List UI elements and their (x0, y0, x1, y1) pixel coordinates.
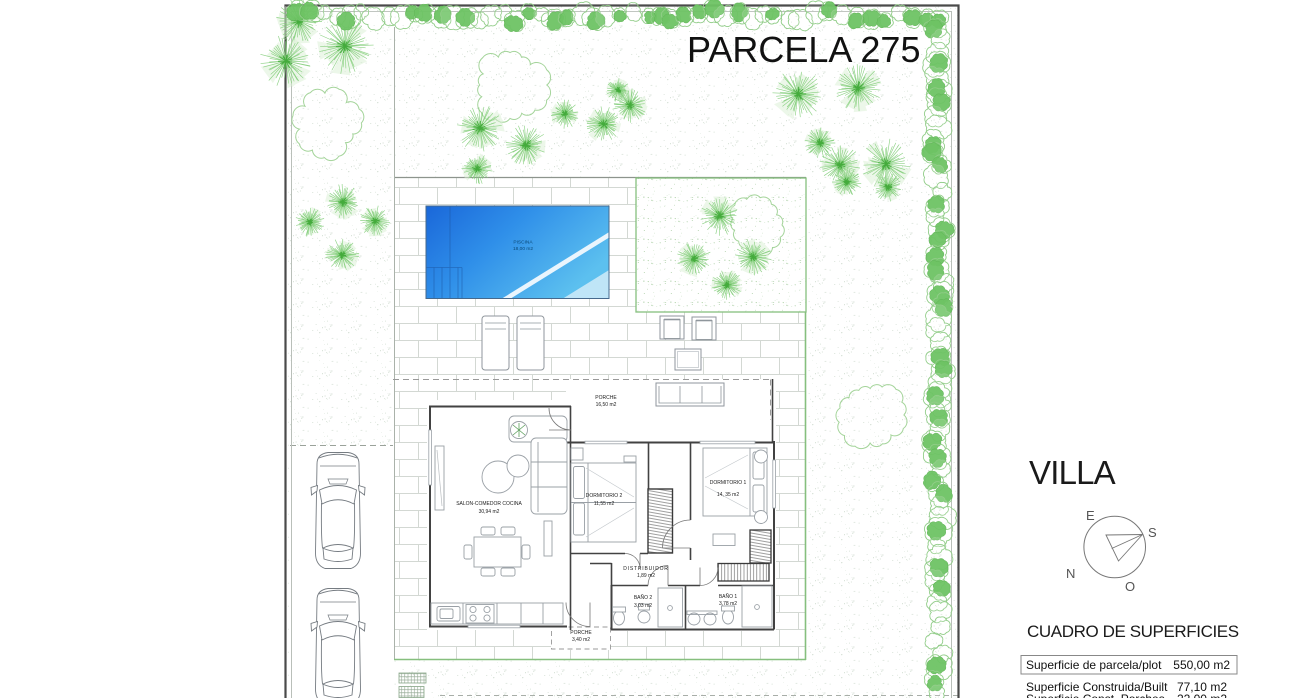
svg-text:SALON-COMEDOR COCINA: SALON-COMEDOR COCINA (456, 501, 522, 507)
svg-text:3,78 m2: 3,78 m2 (719, 601, 737, 607)
svg-text:1,89 m2: 1,89 m2 (637, 573, 655, 579)
svg-text:3,03 m2: 3,03 m2 (634, 603, 652, 609)
svg-text:E: E (1086, 508, 1095, 523)
svg-text:S: S (1148, 525, 1157, 540)
svg-text:PORCHE: PORCHE (595, 395, 617, 401)
svg-text:PARCELA 275: PARCELA 275 (687, 29, 920, 70)
svg-text:14, 35 m2: 14, 35 m2 (717, 492, 739, 498)
svg-text:550,00 m2: 550,00 m2 (1173, 658, 1230, 672)
svg-text:Superficie de parcela/plot: Superficie de parcela/plot (1026, 658, 1162, 672)
svg-text:VILLA: VILLA (1029, 454, 1116, 491)
svg-text:3,40 m2: 3,40 m2 (572, 637, 590, 643)
svg-text:DORMITORIO 2: DORMITORIO 2 (586, 493, 623, 499)
svg-text:22,00 m2: 22,00 m2 (1177, 692, 1227, 698)
svg-text:PORCHE: PORCHE (570, 630, 592, 636)
svg-text:N: N (1066, 566, 1075, 581)
svg-text:DISTRIBUIDOR: DISTRIBUIDOR (623, 566, 668, 572)
svg-text:O: O (1125, 579, 1135, 594)
svg-text:BAÑO 1: BAÑO 1 (719, 593, 738, 600)
svg-text:BAÑO 2: BAÑO 2 (634, 594, 653, 601)
svg-text:CUADRO DE SUPERFICIES: CUADRO DE SUPERFICIES (1027, 622, 1239, 641)
svg-text:30,94 m2: 30,94 m2 (479, 509, 500, 515)
svg-text:18,00 m2: 18,00 m2 (513, 246, 533, 252)
svg-text:Superficie Const. Porches: Superficie Const. Porches (1026, 692, 1165, 698)
svg-text:16,50 m2: 16,50 m2 (596, 402, 617, 408)
svg-text:PISCINA: PISCINA (513, 240, 533, 246)
svg-text:11,55 m2: 11,55 m2 (594, 501, 615, 507)
svg-text:DORMITORIO 1: DORMITORIO 1 (710, 480, 747, 486)
